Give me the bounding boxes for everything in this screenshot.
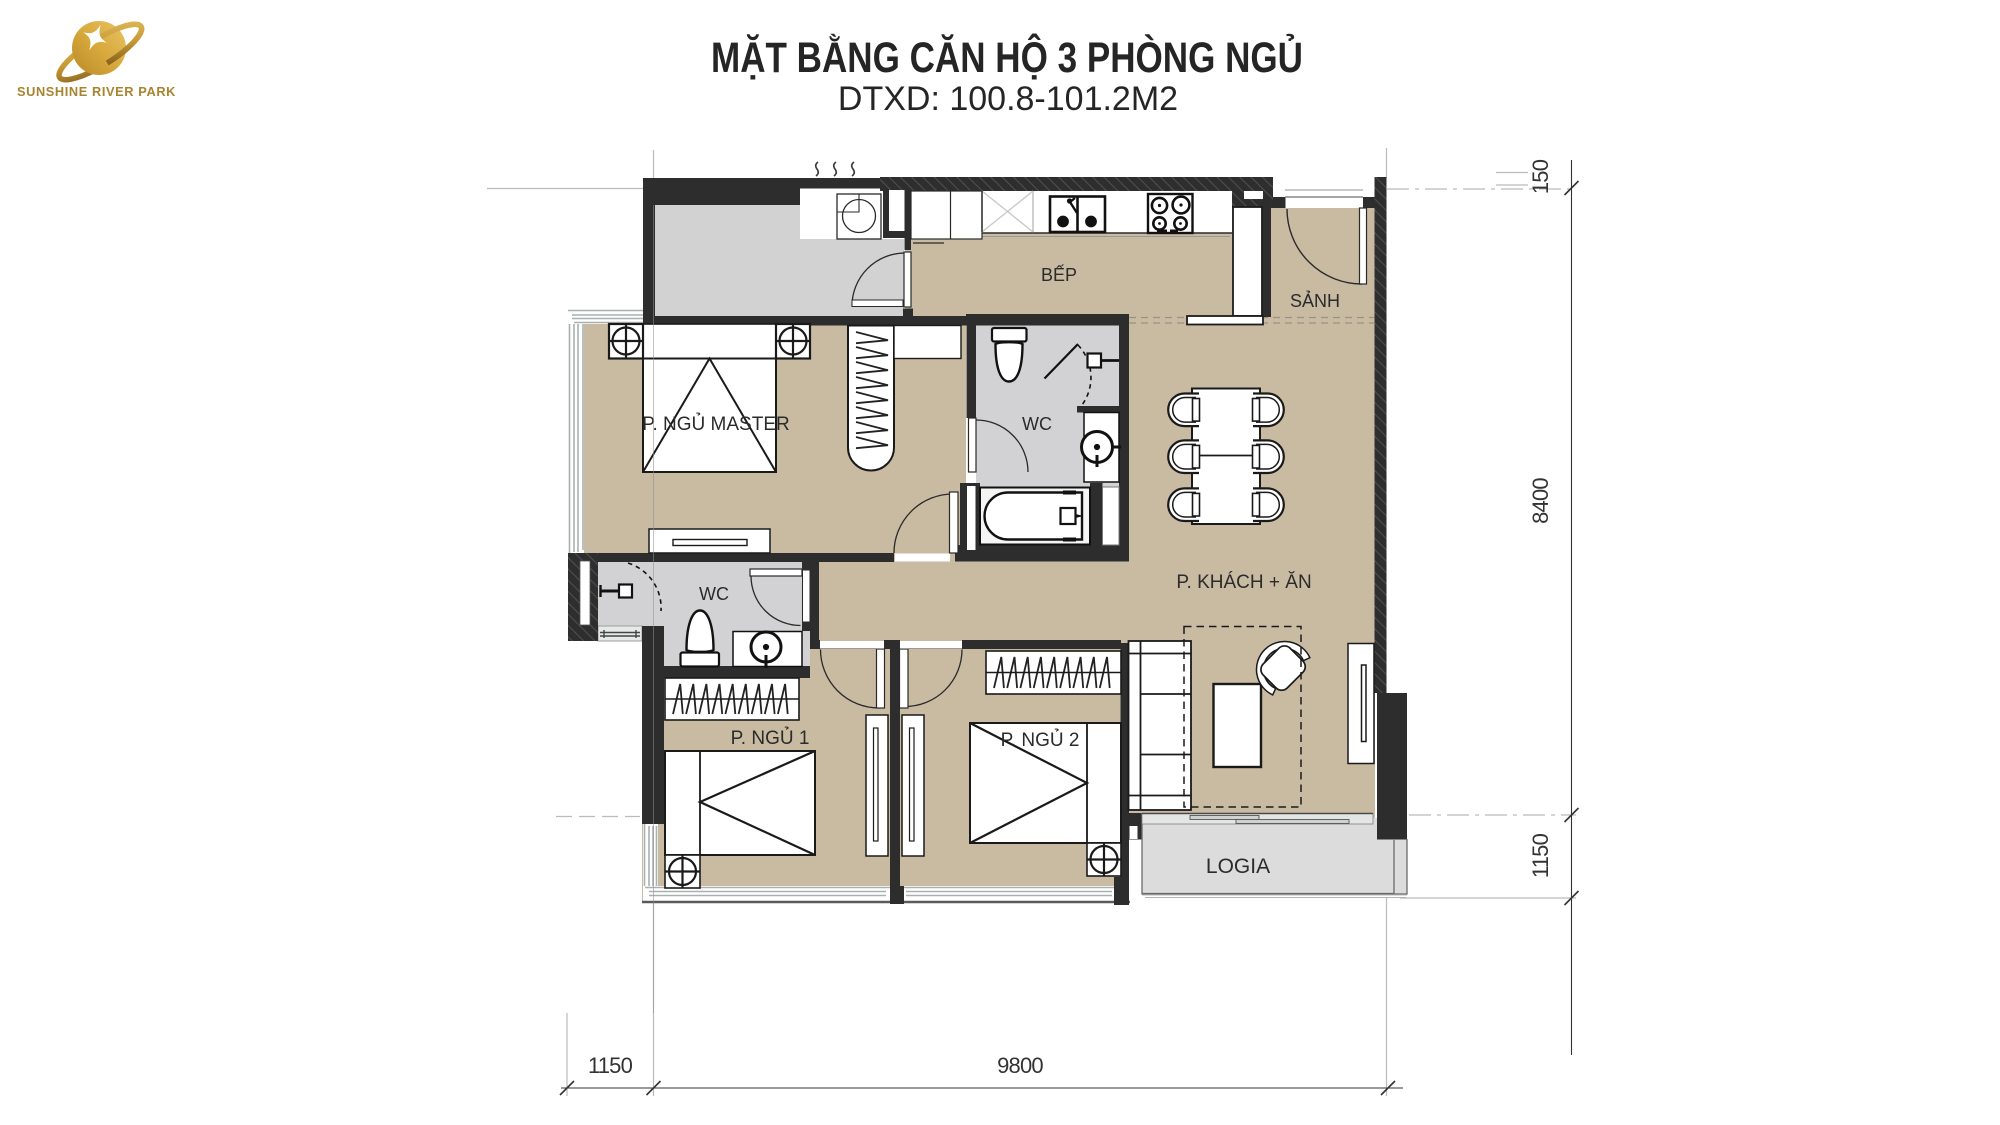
- svg-text:DTXD: 100.8-101.2M2: DTXD: 100.8-101.2M2: [838, 80, 1178, 118]
- svg-text:WC: WC: [699, 584, 729, 604]
- svg-text:1150: 1150: [588, 1053, 633, 1078]
- svg-text:150: 150: [1528, 159, 1553, 194]
- svg-text:P. NGỦ 2: P. NGỦ 2: [1001, 729, 1080, 751]
- svg-text:LOGIA: LOGIA: [1206, 855, 1270, 878]
- svg-text:P. KHÁCH + ĂN: P. KHÁCH + ĂN: [1176, 572, 1311, 593]
- svg-text:MẶT BẰNG CĂN HỘ 3 PHÒNG NGỦ: MẶT BẰNG CĂN HỘ 3 PHÒNG NGỦ: [711, 33, 1303, 82]
- svg-text:P. NGỦ 1: P. NGỦ 1: [731, 727, 810, 749]
- svg-text:1150: 1150: [1528, 833, 1553, 878]
- svg-text:P. NGỦ MASTER: P. NGỦ MASTER: [642, 413, 789, 435]
- svg-text:SUNSHINE RIVER PARK: SUNSHINE RIVER PARK: [17, 85, 176, 99]
- svg-text:WC: WC: [1022, 414, 1052, 434]
- svg-text:SẢNH: SẢNH: [1290, 290, 1340, 311]
- svg-text:BẾP: BẾP: [1041, 264, 1077, 285]
- svg-text:8400: 8400: [1528, 478, 1553, 524]
- svg-text:9800: 9800: [997, 1053, 1043, 1078]
